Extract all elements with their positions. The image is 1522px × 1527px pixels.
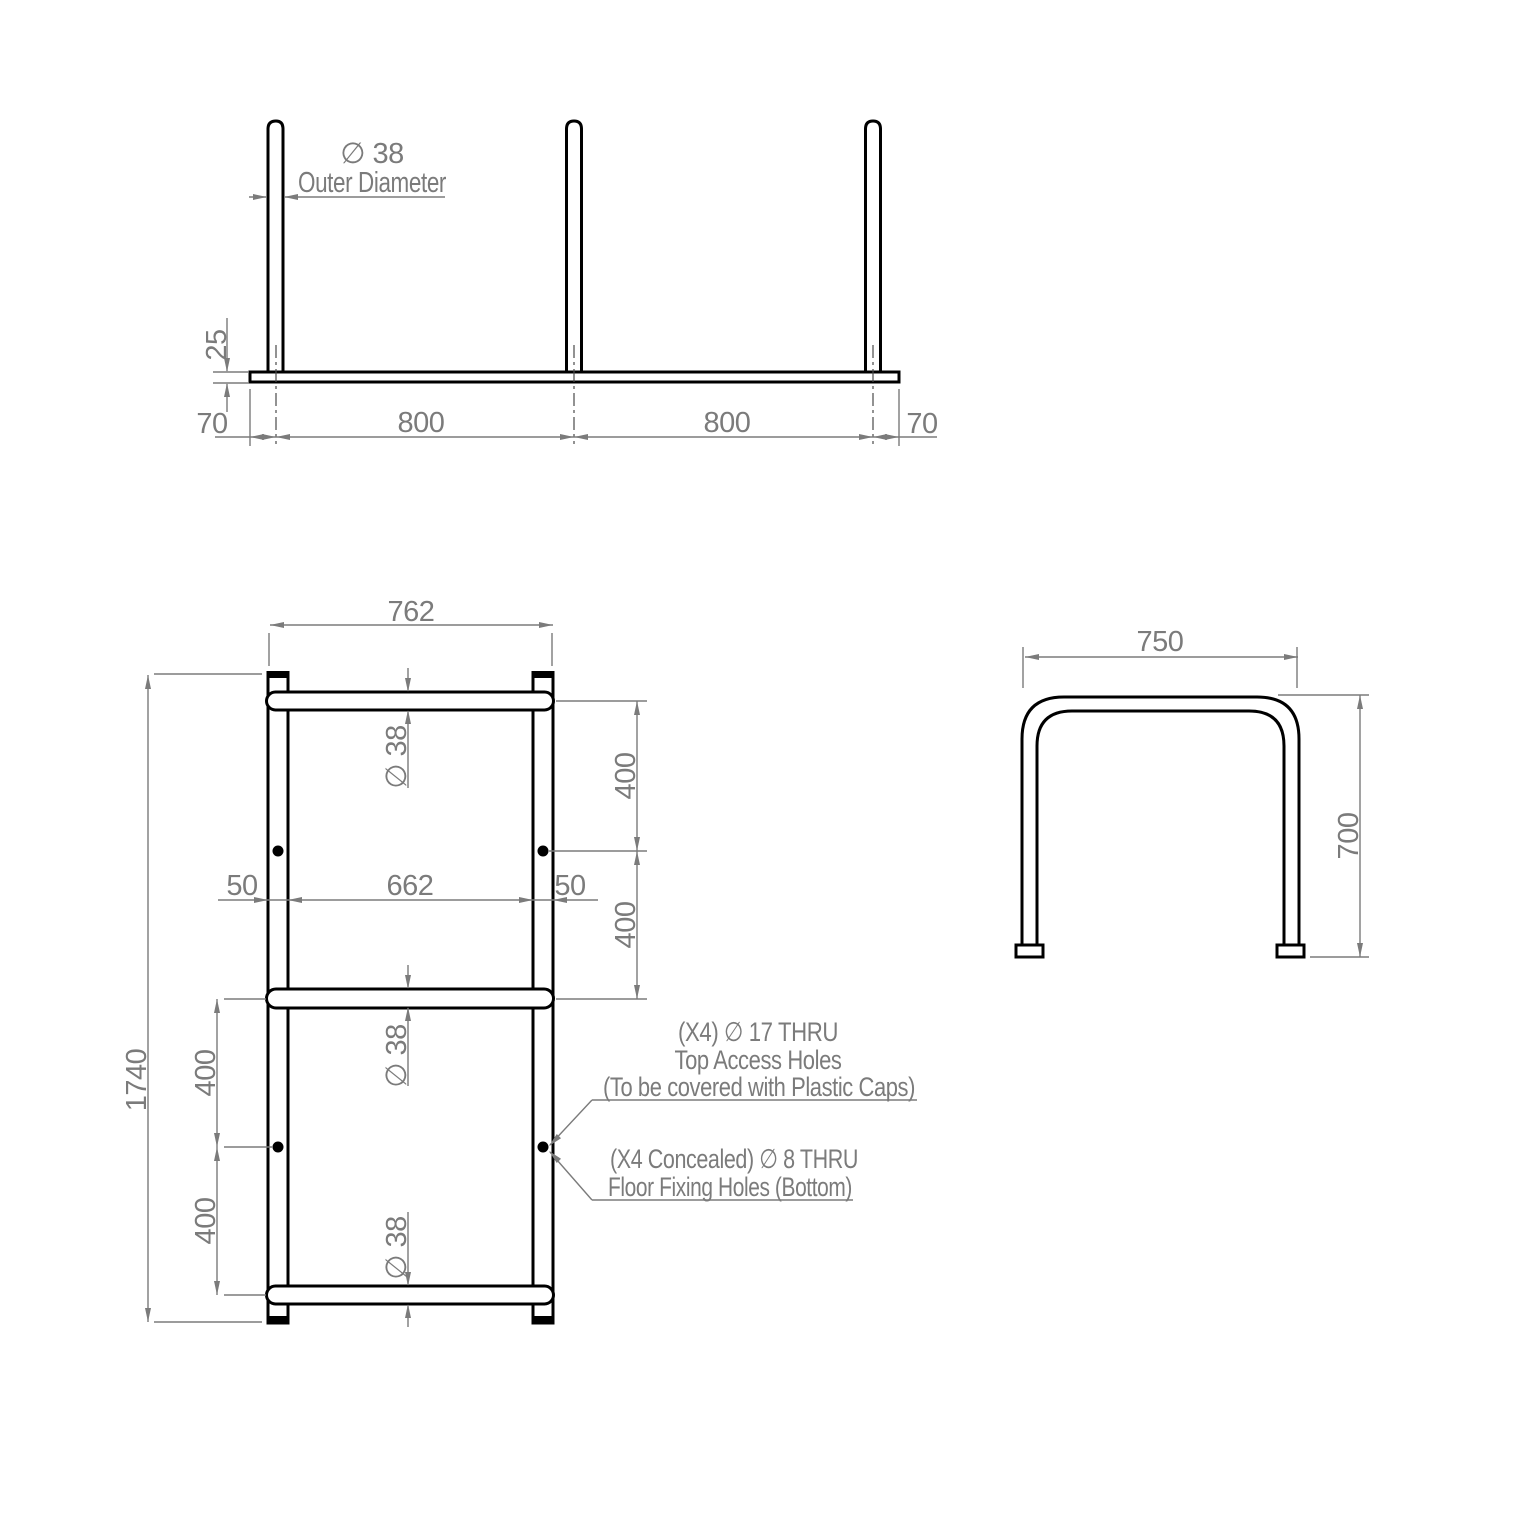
dim-clear-width-value: 662	[387, 870, 434, 902]
front-view-top-cap-left	[267, 671, 290, 678]
access-hole-upper-left	[273, 846, 284, 857]
dim-left-spacing: 400 400	[190, 999, 272, 1295]
dim-plate-thickness: 25	[201, 318, 249, 412]
dim-overall-width: 762	[269, 596, 553, 666]
dim-post-width-left-value: 50	[226, 870, 257, 902]
side-view: 750 700	[1016, 626, 1369, 957]
front-view-rail-top	[267, 692, 554, 710]
dim-right-margin: 70	[906, 408, 937, 440]
callout-top-line3: (To be covered with Plastic Caps)	[603, 1072, 915, 1102]
dim-plate-thickness-value: 25	[201, 329, 233, 360]
dim-right-spacing-lower-value: 400	[610, 902, 642, 949]
dim-outer-diameter-value: ∅ 38	[340, 138, 404, 170]
dim-left-margin: 70	[196, 408, 227, 440]
top-view-post-2	[567, 121, 582, 374]
dim-rail-dia-top-value: ∅ 38	[381, 725, 413, 789]
front-view-top-cap-right	[532, 671, 555, 678]
dim-overall-height-value: 1740	[121, 1049, 153, 1112]
dim-side-width: 750	[1023, 626, 1298, 688]
dim-post-spacing: 70 800 800 70	[196, 389, 937, 446]
callout-floor-line1: (X4 Concealed) ∅ 8 THRU	[610, 1144, 858, 1174]
dim-right-spacing-upper-value: 400	[610, 753, 642, 800]
callout-floor-line2: Floor Fixing Holes (Bottom)	[608, 1172, 852, 1202]
front-view-rail-middle	[267, 989, 554, 1008]
top-view-post-3	[866, 121, 881, 374]
dim-rail-dia-bottom: ∅ 38	[381, 1212, 413, 1327]
side-view-tube-inner	[1037, 711, 1284, 945]
front-view-rail-bottom	[267, 1286, 554, 1304]
side-view-foot-right	[1277, 945, 1304, 957]
dim-overall-width-value: 762	[388, 596, 435, 628]
dim-rail-dia-bottom-value: ∅ 38	[381, 1216, 413, 1280]
dim-post-width-right-value: 50	[554, 870, 585, 902]
dim-right-spacing: 400 400	[549, 701, 647, 999]
dim-rail-dia-middle: ∅ 38	[381, 965, 413, 1088]
dim-rail-dia-top: ∅ 38	[381, 668, 413, 789]
dim-bay-2: 800	[704, 407, 751, 439]
dim-left-spacing-lower-value: 400	[190, 1198, 222, 1245]
dim-side-width-value: 750	[1137, 626, 1184, 658]
dim-left-spacing-upper-value: 400	[190, 1050, 222, 1097]
dim-bay-1: 800	[398, 407, 445, 439]
dim-side-height-value: 700	[1333, 813, 1365, 860]
front-view-foot-right	[532, 1316, 555, 1323]
access-hole-lower-right	[538, 1142, 549, 1153]
top-view-post-1	[268, 121, 283, 374]
callout-top-line1: (X4) ∅ 17 THRU	[678, 1017, 838, 1047]
callout-top-line2: Top Access Holes	[675, 1045, 842, 1075]
callout-top-access-holes: (X4) ∅ 17 THRU Top Access Holes (To be c…	[547, 1017, 917, 1148]
access-hole-upper-right	[538, 846, 549, 857]
front-view-foot-left	[267, 1316, 290, 1323]
drawing-canvas: ∅ 38 Outer Diameter 25 70 800 800 70	[0, 0, 1522, 1522]
top-view: ∅ 38 Outer Diameter 25 70 800 800 70	[196, 121, 937, 446]
access-hole-lower-left	[273, 1142, 284, 1153]
side-view-foot-left	[1016, 945, 1043, 957]
front-view: 762 ∅ 38 ∅ 38 ∅ 38 400	[121, 596, 917, 1327]
dim-outer-diameter-caption: Outer Diameter	[298, 167, 447, 199]
technical-drawing: ∅ 38 Outer Diameter 25 70 800 800 70	[0, 0, 1522, 1522]
callout-floor-fixing-holes: (X4 Concealed) ∅ 8 THRU Floor Fixing Hol…	[547, 1144, 858, 1202]
dim-rail-dia-middle-value: ∅ 38	[381, 1024, 413, 1088]
side-view-tube-outer	[1022, 697, 1299, 945]
dim-side-height: 700	[1278, 695, 1369, 957]
